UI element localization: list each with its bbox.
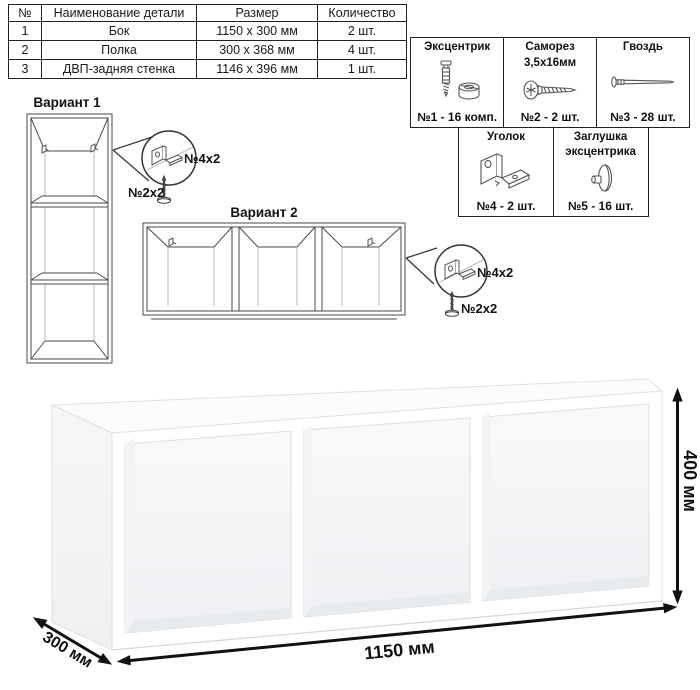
variant2-title: Вариант 2 (230, 205, 297, 220)
dimension-width-label: 1150 мм (363, 637, 435, 664)
callout-bracket-label: №4х2 (184, 151, 220, 166)
variant2-drawing (143, 223, 405, 319)
variant2-callout: №4х2 №2х2 (406, 245, 513, 316)
dimension-height-label: 400 мм (680, 450, 700, 512)
shelf-3d-render (52, 379, 662, 650)
callout-screw-label: №2х2 (128, 185, 164, 200)
diagram-art: №4х2 №2х2 (0, 0, 700, 690)
callout-bracket-label: №4х2 (477, 265, 513, 280)
variant1-title: Вариант 1 (33, 95, 101, 110)
assembly-sheet: № Наименование детали Размер Количество … (0, 0, 700, 690)
variant1-drawing (27, 114, 112, 363)
callout-screw-label: №2х2 (461, 301, 497, 316)
variant1-callout: №4х2 №2х2 (113, 131, 220, 203)
